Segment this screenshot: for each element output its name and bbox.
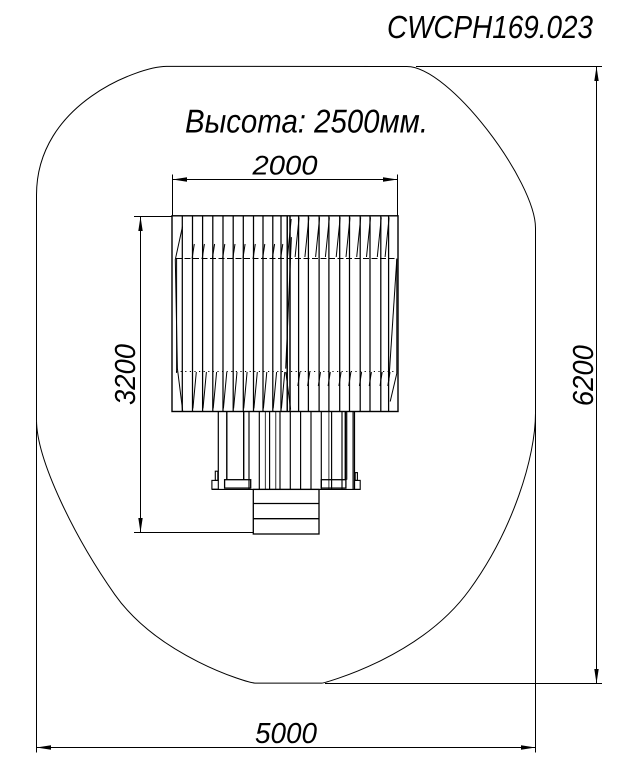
svg-text:5000: 5000: [255, 718, 317, 750]
svg-text:CWCPH169.023: CWCPH169.023: [387, 9, 593, 45]
svg-text:Высота: 2500мм.: Высота: 2500мм.: [185, 102, 428, 139]
svg-text:2000: 2000: [251, 151, 317, 181]
svg-text:3200: 3200: [110, 344, 142, 405]
svg-text:6200: 6200: [568, 345, 600, 406]
